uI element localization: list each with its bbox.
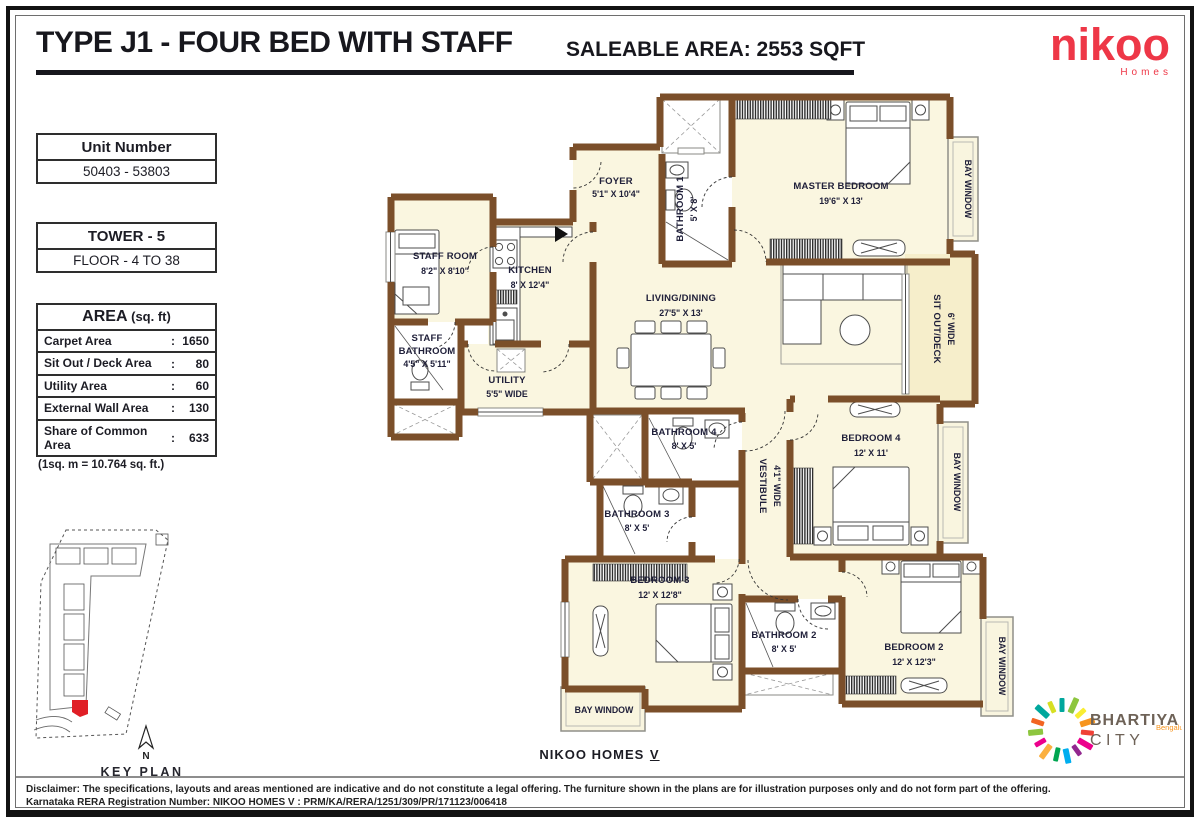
master-ac-unit [853, 240, 905, 256]
label-bedroom2: BEDROOM 2 [884, 642, 943, 653]
tower-box: TOWER - 5 FLOOR - 4 TO 38 [36, 222, 217, 273]
duct-bathroom4 [592, 415, 642, 480]
bhartiya-burst-icon [1028, 697, 1096, 764]
label-bay-window-bedroom2: BAY WINDOW [997, 637, 1007, 696]
slider-sitout [902, 274, 909, 394]
bedroom4-ac-unit [850, 402, 900, 417]
label-bedroom2-dim: 12' X 12'3" [892, 657, 936, 667]
bedroom4-wardrobe [793, 468, 813, 544]
site-road [50, 544, 146, 710]
label-master-bedroom-dim: 19'6" X 13' [819, 196, 863, 206]
title-underline [36, 70, 854, 75]
bedroom2-ac-unit [901, 678, 947, 693]
bedroom2-wardrobe [842, 676, 896, 694]
label-bathroom1-dim: 5' X 8' [689, 197, 699, 222]
north-arrow-icon [139, 726, 153, 748]
label-vestibule-dim: 4'1" WIDE [772, 465, 782, 507]
label-bathroom3-dim: 8' X 5' [625, 523, 650, 533]
conversion-note: (1sq. m = 10.764 sq. ft.) [38, 459, 164, 471]
label-foyer: FOYER [599, 176, 633, 187]
window-utility [478, 408, 543, 416]
label-bedroom4: BEDROOM 4 [841, 433, 901, 444]
lift-shaft [662, 99, 720, 154]
unit-number-box: Unit Number 50403 - 53803 [36, 133, 217, 184]
label-utility-dim: 5'5" WIDE [486, 389, 528, 399]
floor-plan: FOYER 5'1" X 10'4" BATHROOM 1 5' X 8' MA… [383, 82, 1023, 744]
window-bedroom3 [561, 602, 569, 657]
label-staff-bathroom-dim: 4'5" X 5'11" [403, 359, 450, 369]
label-utility: UTILITY [488, 375, 526, 386]
key-plan: N KEY PLAN [28, 524, 208, 782]
label-foyer-dim: 5'1" X 10'4" [592, 189, 640, 199]
nikoo-wordmark: nikoo [1050, 24, 1172, 65]
bedroom3-ac-unit [593, 606, 608, 656]
area-row-external-wall: External Wall Area:130 [38, 398, 215, 420]
nikoo-logo: nikoo Homes [1050, 24, 1172, 78]
project-name: NIKOO HOMES V [450, 747, 750, 762]
label-living-dining-dim: 27'5" X 13' [659, 308, 703, 318]
toilet-bathroom2 [775, 603, 795, 611]
label-bay-window-master: BAY WINDOW [963, 160, 973, 219]
label-living-dining: LIVING/DINING [646, 293, 716, 304]
page-title: TYPE J1 - FOUR BED WITH STAFF [36, 26, 513, 60]
area-table-title: AREA (sq. ft) [38, 305, 215, 331]
label-bathroom2-dim: 8' X 5' [772, 644, 797, 654]
tower-label: TOWER - 5 [38, 224, 215, 250]
label-kitchen-dim: 8' X 12'4" [511, 280, 550, 290]
area-row-carpet: Carpet Area:1650 [38, 331, 215, 353]
toilet-bathroom1 [666, 190, 675, 210]
area-row-sitout: Sit Out / Deck Area:80 [38, 353, 215, 375]
label-master-bedroom: MASTER BEDROOM [793, 181, 888, 192]
label-bathroom1: BATHROOM 1 [675, 176, 686, 242]
area-table: AREA (sq. ft) Carpet Area:1650 Sit Out /… [36, 303, 217, 457]
duct-kitchen [497, 349, 525, 372]
ledge-bathroom2 [744, 673, 833, 695]
label-bathroom4-dim: 8' X 5' [672, 441, 697, 451]
highlighted-unit [72, 700, 88, 717]
toilet-bathroom3 [623, 486, 643, 494]
label-bay-window-bedroom4: BAY WINDOW [952, 453, 962, 512]
floor-label: FLOOR - 4 TO 38 [38, 250, 215, 271]
label-staff-room: STAFF ROOM [413, 251, 477, 262]
bengaluru-text: Bengaluru [1156, 723, 1182, 732]
footer-separator [16, 776, 1184, 778]
saleable-area: SALEABLE AREA: 2553 SQFT [566, 38, 865, 62]
label-sitout-dim: 6' WIDE [946, 313, 956, 346]
city-text: CITY [1090, 732, 1144, 749]
label-bedroom3: BEDROOM 3 [630, 575, 689, 586]
floorplan-page: TYPE J1 - FOUR BED WITH STAFF SALEABLE A… [0, 0, 1200, 823]
bay-window-bedroom2 [981, 617, 1013, 716]
area-row-common: Share of Common Area:633 [38, 421, 215, 456]
rera-line: Karnataka RERA Registration Number: NIKO… [26, 797, 1174, 808]
north-label: N [142, 751, 149, 762]
unit-number-value: 50403 - 53803 [38, 161, 215, 182]
label-bedroom4-dim: 12' X 11' [854, 448, 888, 458]
bhartiya-city-logo: BHARTIYA CITY Bengaluru [1026, 688, 1182, 772]
unit-number-label: Unit Number [38, 135, 215, 161]
label-bay-window-bedroom3: BAY WINDOW [575, 705, 634, 715]
label-bedroom3-dim: 12' X 12'8" [638, 590, 682, 600]
label-sitout: SIT OUT/DECK [931, 294, 942, 363]
label-bathroom3: BATHROOM 3 [604, 509, 669, 520]
coffee-table [840, 315, 870, 345]
toilet-staff-bathroom [411, 382, 429, 390]
label-staff-bathroom: STAFF [412, 333, 443, 344]
label-staff-room-dim: 8'2" X 8'10" [421, 266, 469, 276]
duct-staff-bathroom [393, 404, 457, 435]
label-staff-bathroom2: BATHROOM [399, 346, 456, 357]
label-vestibule: VESTIBULE [757, 458, 768, 513]
window-staff-room [386, 232, 395, 282]
area-row-utility: Utility Area:60 [38, 376, 215, 398]
disclaimer-line: Disclaimer: The specifications, layouts … [26, 783, 1174, 796]
label-bathroom4: BATHROOM 4 [651, 427, 717, 438]
toilet-bathroom4 [673, 418, 693, 426]
label-bathroom2: BATHROOM 2 [751, 630, 816, 641]
label-kitchen: KITCHEN [508, 265, 552, 276]
